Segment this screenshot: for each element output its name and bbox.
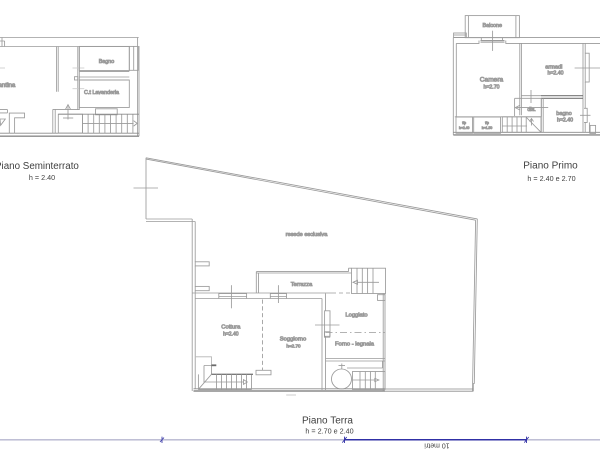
svg-text:Piano Primo: Piano Primo [523,161,578,172]
svg-text:h=2.40: h=2.40 [547,71,563,77]
svg-text:h = 2.40: h = 2.40 [29,173,55,182]
svg-text:Loggiato: Loggiato [345,313,367,319]
svg-text:10 metri: 10 metri [424,441,450,448]
svg-text:C.t Lavanderia: C.t Lavanderia [84,90,119,96]
svg-text:Camera: Camera [480,77,504,84]
svg-text:h=2.40: h=2.40 [557,118,573,124]
svg-text:Piano Seminterrato: Piano Seminterrato [0,161,79,172]
svg-text:f/p: f/p [485,121,489,125]
svg-text:h=2.70: h=2.70 [483,85,499,91]
svg-text:f/p: f/p [462,121,466,125]
svg-text:h=2.40: h=2.40 [459,126,470,130]
svg-text:Soggiorno: Soggiorno [280,337,306,343]
svg-text:Cantina: Cantina [0,82,16,89]
svg-text:Cottura: Cottura [221,325,241,331]
svg-text:resede esclusiva: resede esclusiva [286,232,329,238]
svg-text:Piano Terra: Piano Terra [302,416,353,427]
svg-text:h = 2.70 e 2.40: h = 2.70 e 2.40 [305,427,353,436]
svg-text:bagno: bagno [556,111,572,117]
svg-text:h = 2.40 e 2.70: h = 2.40 e 2.70 [527,174,575,183]
svg-text:Terrazza: Terrazza [291,282,313,288]
svg-text:Bagno: Bagno [99,59,115,65]
svg-text:h=2.40: h=2.40 [223,332,239,338]
svg-text:h=1.50: h=1.50 [482,126,493,130]
svg-text:Forno - legnaia: Forno - legnaia [335,342,375,348]
svg-text:h=2.70: h=2.70 [286,344,301,349]
svg-text:Balcone: Balcone [483,23,502,29]
